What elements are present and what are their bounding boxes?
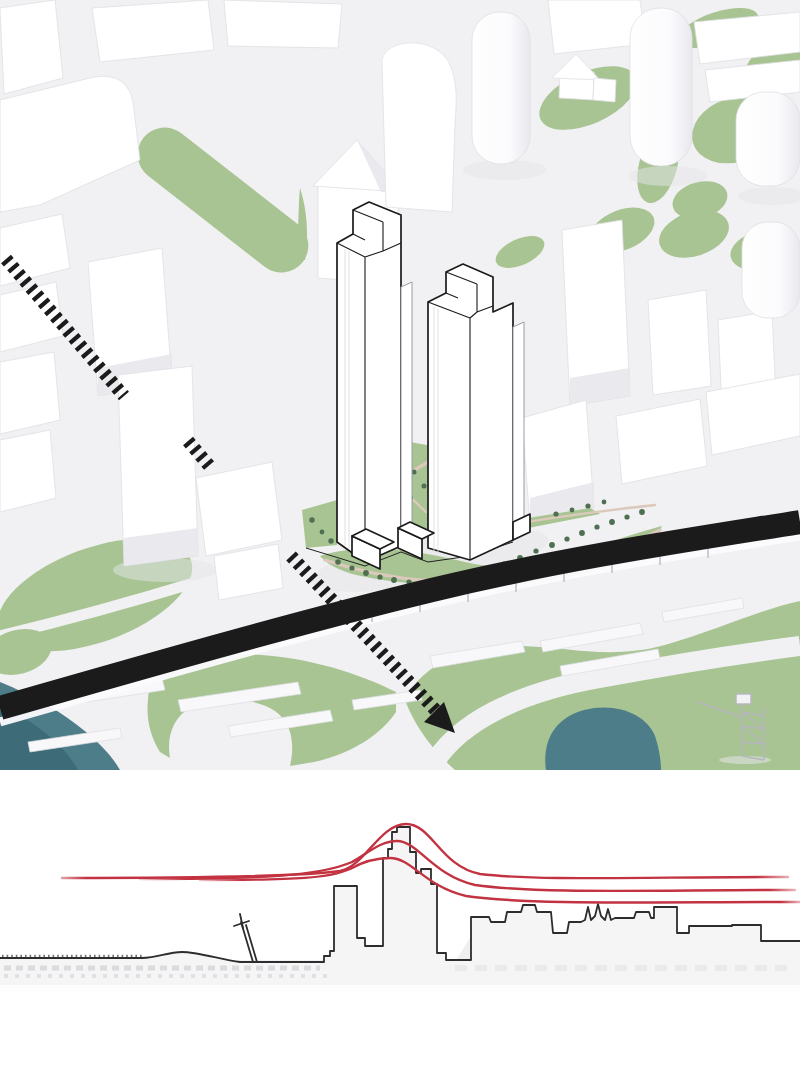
- round-tower: [630, 8, 692, 166]
- round-tower: [472, 12, 530, 164]
- proposed-tower-right: [428, 264, 524, 560]
- proposed-tower-left: [337, 202, 412, 562]
- round-tower: [742, 222, 800, 318]
- round-tower: [736, 92, 800, 186]
- site-plan-figure: [0, 0, 800, 770]
- figure-page: [0, 0, 800, 1067]
- skyline-figure: [0, 770, 800, 1067]
